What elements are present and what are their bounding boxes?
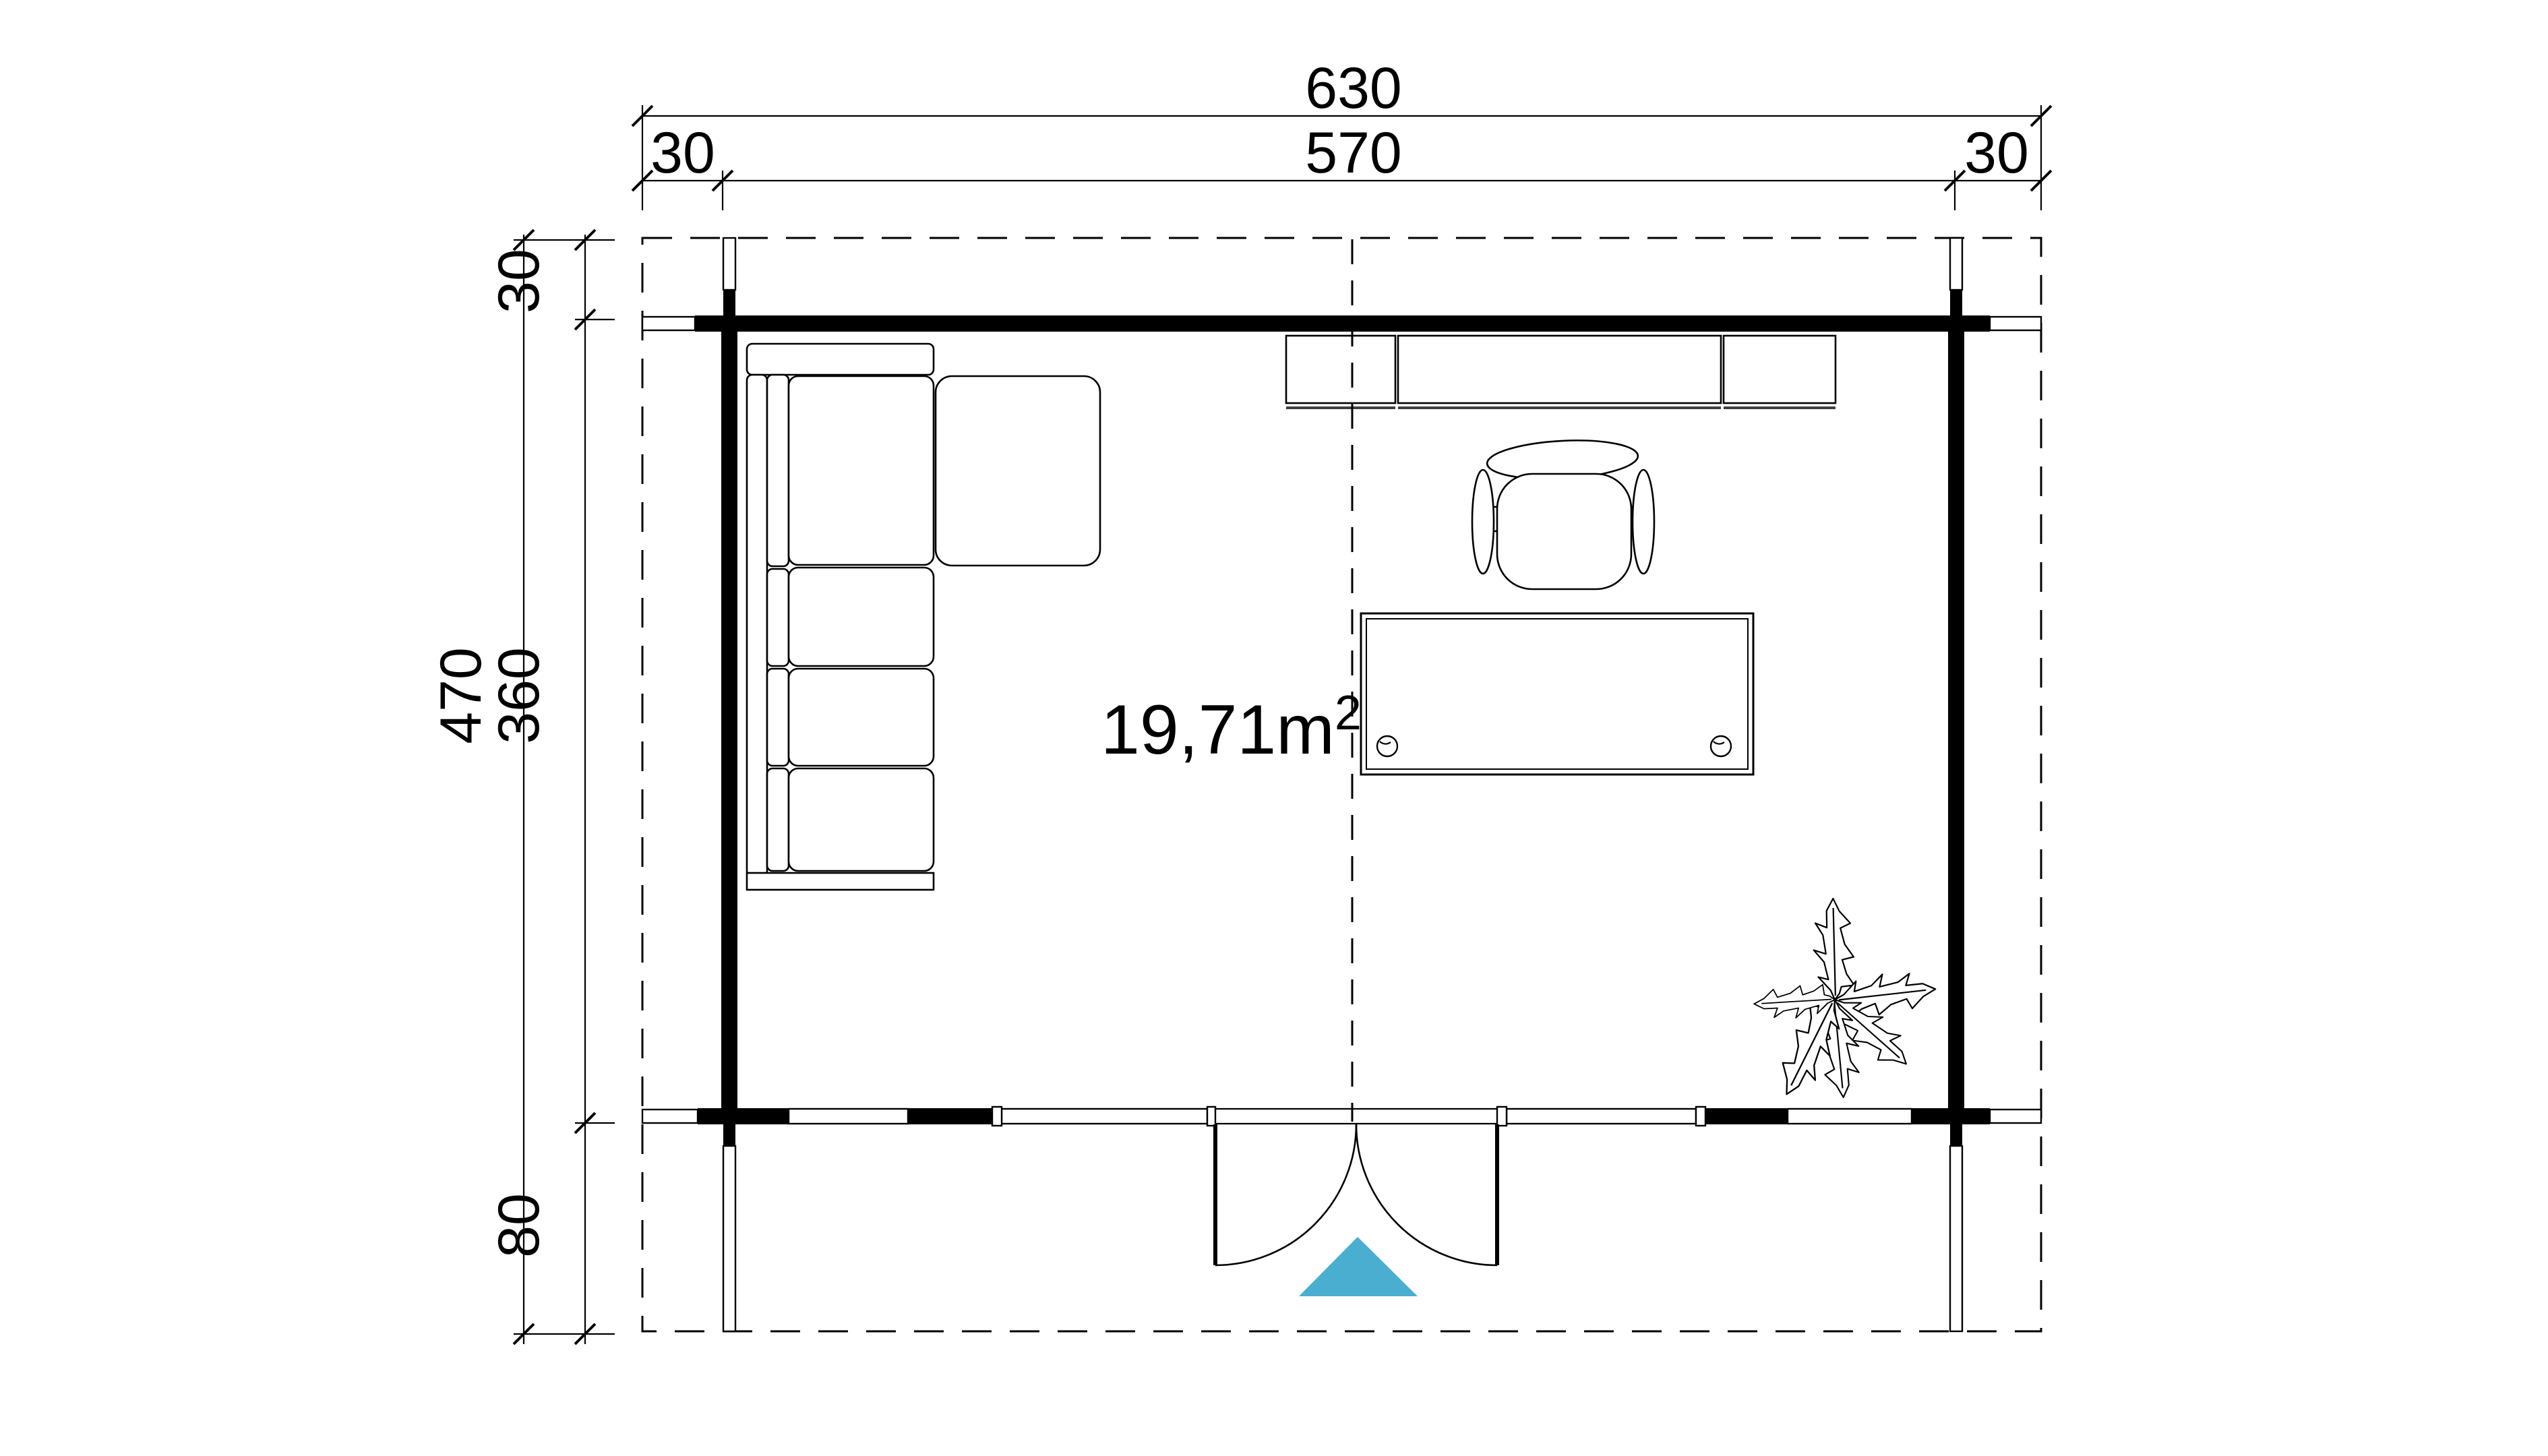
- corner-post-top-left: [723, 238, 735, 290]
- door-swing-arc-right: [1356, 1124, 1497, 1265]
- wall-bottom-segment: [1912, 1108, 1990, 1124]
- porch-post-left: [723, 1146, 735, 1331]
- sofa-backrest-left: [767, 768, 789, 871]
- dim-label-overhang-left: 30: [650, 121, 715, 185]
- porch-post-right: [1950, 1146, 1962, 1331]
- door-jamb: [1207, 1107, 1215, 1126]
- chair-armrest-right: [1633, 470, 1654, 574]
- wall-post-stub: [1950, 1123, 1962, 1146]
- door-jamb: [1497, 1107, 1507, 1126]
- sofa-base: [747, 873, 934, 890]
- window: [1002, 1109, 1207, 1124]
- log-end-bottom-right: [1990, 1110, 2041, 1123]
- desk-grommet-left: [1377, 736, 1397, 756]
- floor-plan-canvas: 630 570 30 30 470 360 30 80: [0, 0, 2548, 1456]
- dim-label-overall-height: 470: [429, 647, 493, 744]
- wall-post-stub: [723, 290, 735, 317]
- sofa-backrest-left: [767, 569, 789, 666]
- wall-post-stub: [1950, 290, 1962, 317]
- wall-right: [1948, 315, 1964, 1124]
- corner-post-top-right: [1950, 238, 1962, 290]
- office-chair: [1472, 437, 1654, 589]
- sofa-backrest-top: [747, 344, 934, 375]
- door-jamb: [992, 1107, 1002, 1126]
- sofa-cushion: [789, 669, 934, 766]
- sofa-backrest-left: [767, 669, 789, 766]
- chair-armrest-left: [1472, 470, 1494, 574]
- wall-bottom-segment: [698, 1108, 789, 1124]
- window: [1507, 1109, 1696, 1124]
- area-value: 19,71m: [1101, 691, 1335, 769]
- dim-label-inner-height: 360: [487, 647, 551, 744]
- wall-bottom-segment: [1705, 1108, 1788, 1124]
- door-jamb: [1696, 1107, 1705, 1126]
- sofa-cushion: [789, 768, 934, 871]
- window: [1788, 1109, 1912, 1124]
- area-label: 19,71m2: [1101, 686, 1362, 769]
- dim-label-overall-width: 630: [1305, 56, 1402, 121]
- wall-post-stub: [723, 1123, 735, 1146]
- wall-top: [695, 315, 1990, 332]
- double-door: [1215, 1109, 1497, 1296]
- shelf-unit-1: [1286, 336, 1395, 408]
- window: [789, 1109, 908, 1124]
- dim-label-overhang-right: 30: [1964, 121, 2029, 185]
- desk-grommet-right: [1711, 736, 1731, 756]
- desk: [1361, 613, 1753, 775]
- desk-outline: [1361, 613, 1753, 775]
- plant-icon: [1753, 899, 1937, 1104]
- sofa-cushion: [789, 568, 934, 666]
- shelf-unit-2: [1398, 336, 1721, 408]
- wall-left: [721, 315, 737, 1124]
- sofa-armrest-left: [747, 375, 767, 876]
- chair-seat: [1497, 474, 1631, 589]
- log-end-bottom-left: [642, 1110, 698, 1123]
- sofa-chaise-cushion: [936, 376, 1100, 566]
- sofa-backrest-left: [767, 375, 789, 566]
- area-superscript: 2: [1335, 686, 1362, 740]
- log-end-top-right: [1990, 317, 2041, 330]
- dim-label-porch-depth: 80: [487, 1193, 551, 1258]
- entrance-arrow-icon: [1299, 1237, 1418, 1296]
- dim-label-overhang-top: 30: [487, 249, 551, 313]
- sofa-cushion-corner: [789, 376, 934, 565]
- wall-bottom-segment: [908, 1108, 992, 1124]
- log-end-top-left: [642, 317, 695, 330]
- corner-sofa: [747, 344, 1100, 890]
- door-swing-arc-left: [1215, 1124, 1356, 1265]
- shelf-unit-3: [1724, 336, 1836, 408]
- dim-label-inner-width: 570: [1305, 121, 1402, 185]
